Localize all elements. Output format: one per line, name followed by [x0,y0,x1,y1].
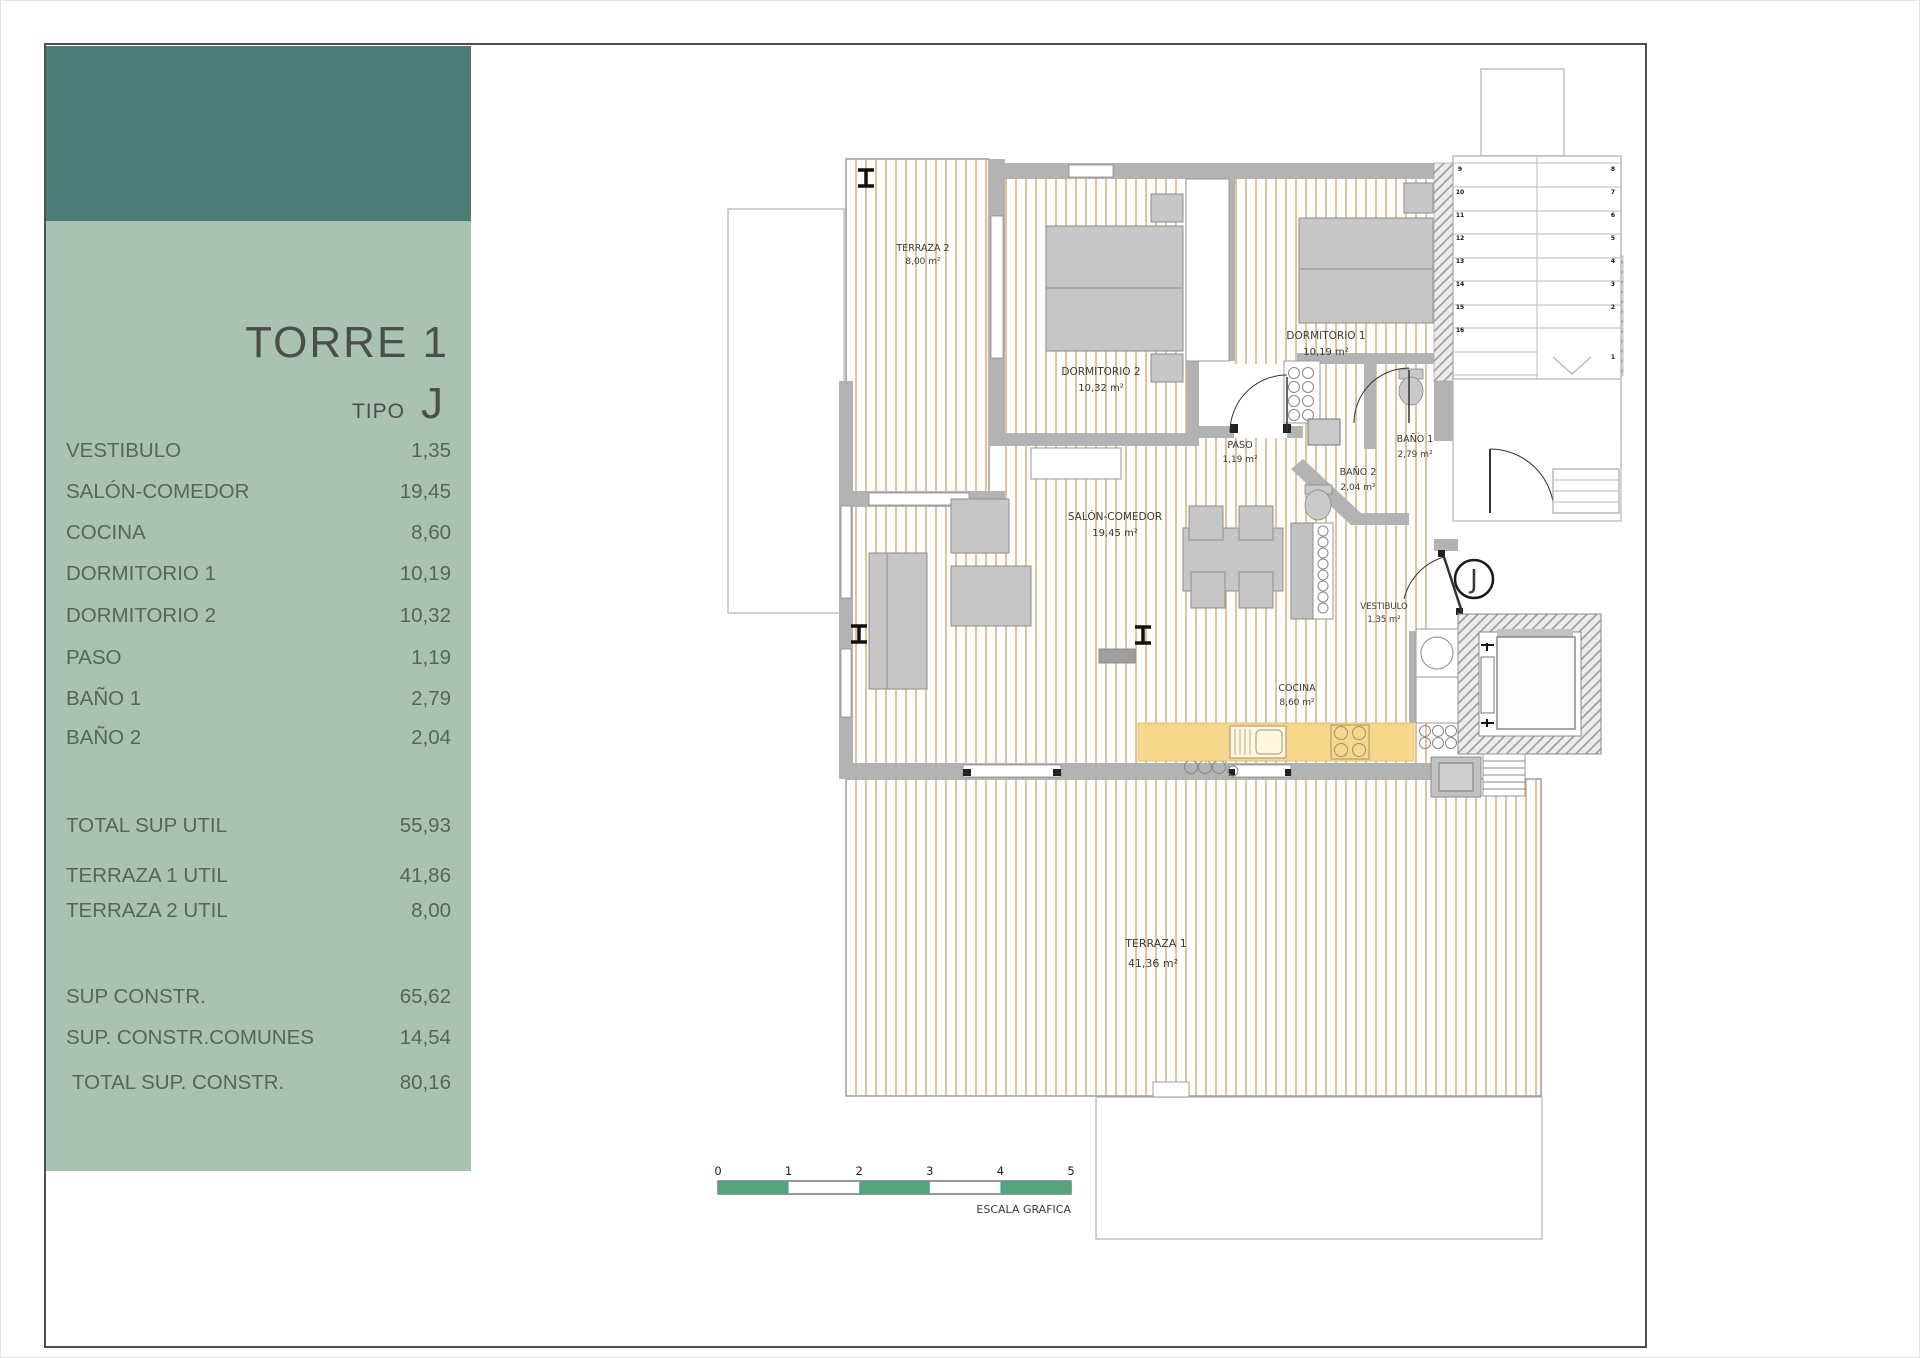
chair [1239,572,1273,608]
elevator-car [1497,637,1575,729]
constructed-row: SUP. CONSTR.COMUNES14,54 [46,1026,471,1050]
tower-title: TORRE 1 [245,318,449,368]
tipo-value: J [421,379,443,429]
toilet-bano2 [1305,490,1331,520]
toilet-bano1 [1399,377,1423,405]
svg-text:11: 11 [1456,212,1464,219]
svg-text:0: 0 [714,1164,721,1178]
nightstand [1151,354,1183,382]
nightstand [1151,194,1183,222]
svg-text:7: 7 [1611,189,1615,196]
total-row: TERRAZA 1 UTIL41,86 [46,864,471,888]
bed-dorm1 [1299,218,1433,323]
terraza1-notch [1153,1082,1189,1097]
staircase: 9 10 11 12 13 14 15 16 8 7 6 5 4 3 2 1 [1453,156,1621,521]
unit-marker-letter: J [1468,565,1478,595]
closet [1186,179,1229,361]
svg-text:1,19 m²: 1,19 m² [1222,455,1258,465]
unit-marker: J [1455,560,1493,598]
svg-text:5: 5 [1067,1164,1074,1178]
svg-text:19,45 m²: 19,45 m² [1092,528,1138,539]
kitchen-peninsula [1291,523,1313,619]
svg-text:COCINA: COCINA [1278,683,1316,694]
loveseat [951,566,1031,626]
svg-text:3: 3 [926,1164,933,1178]
total-row: TOTAL SUP UTIL55,93 [46,814,471,838]
info-panel: TORRE 1 TIPO J VESTIBULO1,35 SALÓN-COMED… [46,46,471,1171]
scale-bar-label: ESCALA GRAFICA [976,1203,1071,1216]
area-row: BAÑO 22,04 [46,726,471,750]
svg-text:16: 16 [1456,327,1464,334]
svg-text:8,00 m²: 8,00 m² [905,257,941,267]
washer-cabinet [1416,629,1458,677]
svg-text:1: 1 [1611,354,1615,361]
area-row: DORMITORIO 210,32 [46,604,471,628]
svg-text:BAÑO 1: BAÑO 1 [1397,434,1434,445]
desk [1031,448,1121,479]
chair [1189,506,1223,540]
panel-header [46,46,471,221]
svg-text:1: 1 [785,1164,792,1178]
svg-text:DORMITORIO 2: DORMITORIO 2 [1061,366,1140,378]
tipo-label: TIPO [352,400,405,424]
svg-text:4: 4 [997,1164,1004,1178]
chair [1191,572,1225,608]
unit-type: TIPO J [352,379,443,429]
svg-text:1,35 m²: 1,35 m² [1367,615,1400,625]
sofa [869,553,927,689]
area-row: DORMITORIO 110,19 [46,562,471,586]
area-row: BAÑO 12,79 [46,687,471,711]
svg-text:13: 13 [1456,258,1464,265]
terraza1-floor [846,779,1541,1096]
constructed-row: SUP CONSTR.65,62 [46,985,471,1009]
svg-text:DORMITORIO 1: DORMITORIO 1 [1286,330,1365,342]
svg-text:2,79 m²: 2,79 m² [1397,450,1433,460]
tv-bench [1099,649,1135,663]
nightstand [1404,183,1433,213]
svg-text:10: 10 [1456,189,1464,196]
area-row: PASO1,19 [46,646,471,670]
elevator [1458,614,1601,754]
total-row: TERRAZA 2 UTIL8,00 [46,899,471,923]
svg-text:6: 6 [1611,212,1615,219]
svg-text:SALÓN-COMEDOR: SALÓN-COMEDOR [1068,510,1162,523]
svg-text:TERRAZA 1: TERRAZA 1 [1124,937,1187,950]
area-row: COCINA8,60 [46,521,471,545]
svg-text:10,32 m²: 10,32 m² [1078,383,1124,394]
svg-text:3: 3 [1611,281,1615,288]
area-row: VESTIBULO1,35 [46,439,471,463]
terraza2-floor [846,159,989,493]
svg-text:2: 2 [856,1164,863,1178]
svg-text:2: 2 [1611,304,1615,311]
chair [1239,506,1273,540]
svg-text:2,04 m²: 2,04 m² [1340,483,1376,493]
constructed-row: TOTAL SUP. CONSTR.80,16 [46,1071,471,1095]
armchair [951,499,1009,553]
empty-cabinet [1416,677,1458,723]
svg-text:5: 5 [1611,235,1615,242]
svg-text:12: 12 [1456,235,1464,242]
svg-text:4: 4 [1611,258,1615,265]
svg-text:VESTIBULO: VESTIBULO [1360,602,1408,612]
svg-text:15: 15 [1456,304,1464,311]
area-row: SALÓN-COMEDOR19,45 [46,480,471,504]
svg-text:41,36 m²: 41,36 m² [1128,957,1178,970]
sink-bano2 [1308,419,1340,445]
drawing-sheet: 9 10 11 12 13 14 15 16 8 7 6 5 4 3 2 1 [0,0,1920,1358]
svg-text:8,60 m²: 8,60 m² [1279,698,1315,708]
svg-text:8: 8 [1611,166,1615,173]
svg-text:10,19 m²: 10,19 m² [1303,347,1349,358]
svg-text:PASO: PASO [1227,440,1252,451]
svg-text:TERRAZA 2: TERRAZA 2 [895,243,949,254]
svg-text:BAÑO 2: BAÑO 2 [1340,467,1377,478]
svg-text:14: 14 [1456,281,1464,288]
svg-text:9: 9 [1458,166,1462,173]
